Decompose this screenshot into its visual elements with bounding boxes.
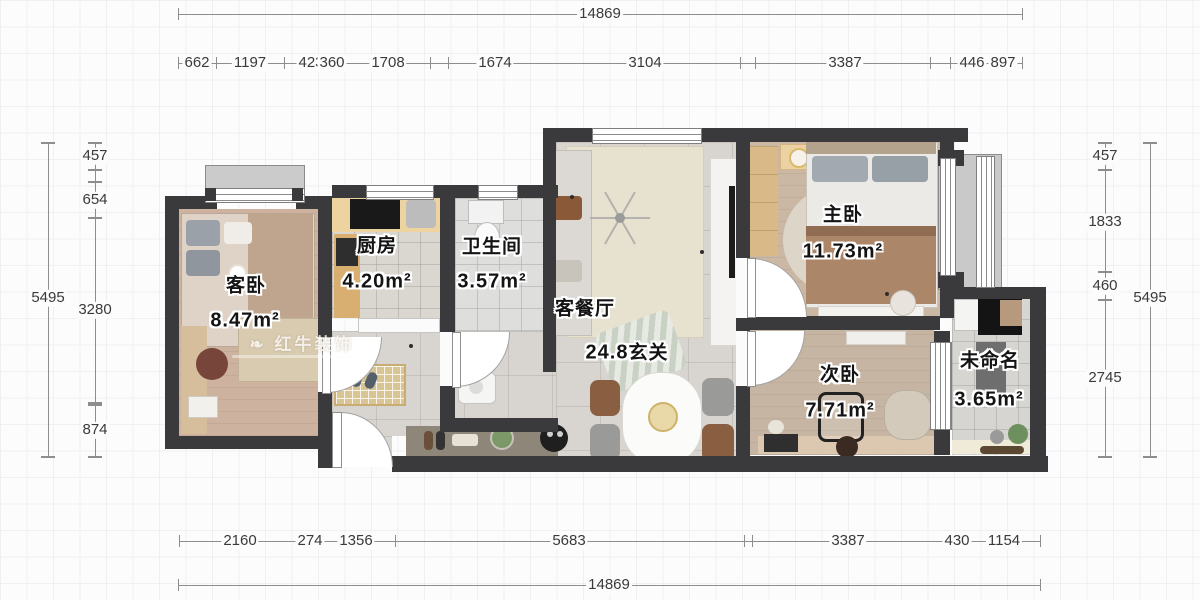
- dim-tick: [448, 57, 450, 69]
- dining-centerpiece: [648, 402, 678, 432]
- watermark: ❧ 红牛装饰: [232, 336, 372, 358]
- dim-tick: [1040, 535, 1042, 547]
- watermark-text: 红牛装饰: [274, 335, 354, 354]
- wall: [736, 142, 750, 258]
- second-books: [764, 434, 798, 452]
- tray: [980, 446, 1024, 454]
- tv: [729, 186, 735, 278]
- dim-top-1: 1197: [232, 55, 268, 72]
- dim-tick: [216, 57, 218, 69]
- master-door-leaf: [747, 258, 756, 318]
- toilet-tank: [468, 200, 504, 224]
- master-pillow: [812, 156, 868, 182]
- dim-tick: [88, 169, 102, 171]
- dim-top-8: 446: [957, 55, 986, 72]
- dim-tick: [1143, 142, 1157, 144]
- second-plant-pot: [768, 420, 784, 434]
- living-area-value: 24.8: [586, 342, 629, 364]
- dim-tick: [41, 456, 55, 458]
- master-wardrobe: [750, 146, 778, 256]
- label-master-bedroom: 主卧: [823, 200, 863, 227]
- dim-tick: [284, 57, 286, 69]
- kitchen-window: [366, 185, 434, 200]
- dining-chair: [590, 380, 620, 416]
- area-master-bedroom: 11.73m²: [803, 241, 883, 264]
- area-bathroom: 3.57m²: [457, 271, 526, 294]
- wall: [944, 287, 1042, 299]
- area-living-dining: 24.8玄关: [586, 338, 669, 365]
- dim-tick: [1098, 169, 1112, 171]
- dim-tick: [1098, 142, 1112, 144]
- wall: [165, 196, 179, 449]
- ceiling-fan-hub: [615, 213, 625, 223]
- shoes: [436, 431, 445, 450]
- label-kitchen: 厨房: [357, 231, 397, 258]
- guest-chair: [196, 348, 228, 380]
- entry-door-leaf: [332, 412, 342, 468]
- entry-bench: [452, 434, 478, 446]
- dining-chair: [702, 378, 734, 416]
- dim-top-7: 3387: [826, 55, 863, 72]
- kitchen-cooktop: [350, 199, 400, 229]
- dim-tick: [1040, 579, 1042, 591]
- dim-top-4: 1708: [369, 55, 406, 72]
- dim-bot-2: 1356: [337, 533, 374, 550]
- kitchen-sink: [406, 200, 436, 228]
- kitchen-doorway: [358, 318, 440, 333]
- dim-left-2: 3280: [76, 302, 113, 319]
- dim-top-6: 3104: [626, 55, 663, 72]
- dim-right-0: 457: [1090, 148, 1119, 165]
- sofa-pillow: [552, 196, 582, 220]
- dim-bot-0: 2160: [221, 533, 258, 550]
- master-blanket-fold: [806, 226, 936, 236]
- label-second-bedroom: 次卧: [820, 360, 860, 387]
- kitchen-appliance: [336, 238, 358, 266]
- master-blanket: [806, 226, 936, 304]
- dim-left-1: 654: [80, 192, 109, 209]
- guest-pillow: [186, 250, 220, 276]
- bathroom-window: [478, 185, 518, 200]
- dim-tick: [930, 57, 932, 69]
- dim-tick: [88, 142, 102, 144]
- watermark-underline: [232, 355, 372, 358]
- dim-right-total: 5495: [1131, 290, 1168, 307]
- balcony-window: [976, 156, 995, 288]
- wall: [748, 316, 940, 330]
- guest-side-table: [188, 396, 218, 418]
- living-window: [592, 128, 702, 144]
- second-shelf: [846, 331, 906, 345]
- dim-tick: [744, 535, 746, 547]
- dim-tick: [1022, 8, 1024, 20]
- dim-bottom-total: 14869: [586, 577, 632, 594]
- dim-bot-5: 430: [942, 533, 971, 550]
- second-sliding-door[interactable]: [930, 342, 952, 430]
- plant: [1008, 424, 1028, 444]
- dim-bot-3: 5683: [550, 533, 587, 550]
- floorplan-canvas: 14869 662 1197 423 360 1708 1674 3104 33…: [0, 0, 1200, 600]
- wall: [543, 128, 556, 372]
- dim-bot-6: 1154: [986, 533, 1022, 550]
- dining-chair: [590, 424, 620, 460]
- guest-pillow: [224, 222, 252, 244]
- dim-tick: [1143, 456, 1157, 458]
- dim-tick: [1098, 456, 1112, 458]
- dim-left-total: 5495: [29, 290, 66, 307]
- wall: [318, 196, 332, 337]
- dim-tick: [178, 57, 180, 69]
- wall: [318, 392, 332, 436]
- second-stool: [836, 436, 858, 458]
- guest-pillow: [186, 220, 220, 246]
- dim-top-total: 14869: [577, 6, 623, 23]
- dim-tick: [752, 535, 754, 547]
- label-bathroom: 卫生间: [462, 232, 522, 259]
- dim-top-3: 360: [317, 55, 346, 72]
- dim-right-2: 460: [1090, 278, 1119, 295]
- dim-tick: [178, 8, 180, 20]
- dim-tick: [430, 57, 432, 69]
- dim-tick: [395, 535, 397, 547]
- dim-tick: [950, 57, 952, 69]
- dim-left-3: 874: [80, 422, 109, 439]
- wall: [392, 456, 1048, 472]
- label-guest-bedroom: 客卧: [226, 271, 266, 298]
- dim-tick: [88, 217, 102, 219]
- wall: [1030, 287, 1046, 457]
- plant-pot: [990, 430, 1004, 444]
- label-living-dining: 客餐厅: [555, 294, 615, 321]
- dim-tick: [1098, 299, 1112, 301]
- dim-right-3: 2745: [1086, 370, 1123, 387]
- window-cap: [205, 188, 216, 201]
- guest-window: [205, 188, 305, 203]
- dim-tick: [88, 456, 102, 458]
- dim-left-0: 457: [80, 148, 109, 165]
- dim-tick: [178, 579, 180, 591]
- dim-tick: [1098, 271, 1112, 273]
- dim-bot-1: 274: [295, 533, 324, 550]
- spot-dot: [570, 195, 574, 199]
- brand-logo-icon: ❧: [250, 335, 267, 354]
- dim-tick: [88, 402, 102, 406]
- utility-sink: [954, 299, 980, 331]
- master-stool: [890, 290, 916, 316]
- dim-top-5: 1674: [476, 55, 513, 72]
- area-guest-bedroom: 8.47m²: [210, 310, 279, 333]
- dim-tick: [755, 57, 757, 69]
- wall: [440, 418, 558, 432]
- master-headboard: [806, 142, 936, 154]
- dim-top-9: 897: [988, 55, 1017, 72]
- sofa-pillow: [552, 260, 582, 282]
- dim-tick: [740, 57, 742, 69]
- dim-tick: [88, 181, 102, 183]
- wall: [165, 436, 332, 449]
- laundry-cloth: [1000, 300, 1022, 326]
- window-cap: [292, 188, 303, 201]
- wall: [736, 386, 750, 456]
- second-armchair: [884, 390, 932, 440]
- area-unnamed-room: 3.65m²: [954, 389, 1023, 412]
- area-second-bedroom: 7.71m²: [805, 400, 874, 423]
- dim-bot-4: 3387: [829, 533, 866, 550]
- spot-dot: [409, 344, 413, 348]
- label-unnamed-room: 未命名: [960, 346, 1020, 373]
- dim-top-0: 662: [182, 55, 211, 72]
- bathroom-door-leaf: [452, 332, 461, 388]
- second-door-leaf: [747, 331, 756, 387]
- shoes: [424, 431, 433, 450]
- spot-dot: [700, 250, 704, 254]
- label-entry-hall: 玄关: [628, 343, 668, 364]
- dim-tick: [179, 535, 181, 547]
- spot-dot: [885, 292, 889, 296]
- master-pillow: [872, 156, 928, 182]
- dim-tick: [41, 142, 55, 144]
- dim-tick: [1022, 57, 1024, 69]
- area-kitchen: 4.20m²: [342, 271, 411, 294]
- dim-right-1: 1833: [1086, 214, 1123, 231]
- master-balcony-window: [940, 158, 956, 276]
